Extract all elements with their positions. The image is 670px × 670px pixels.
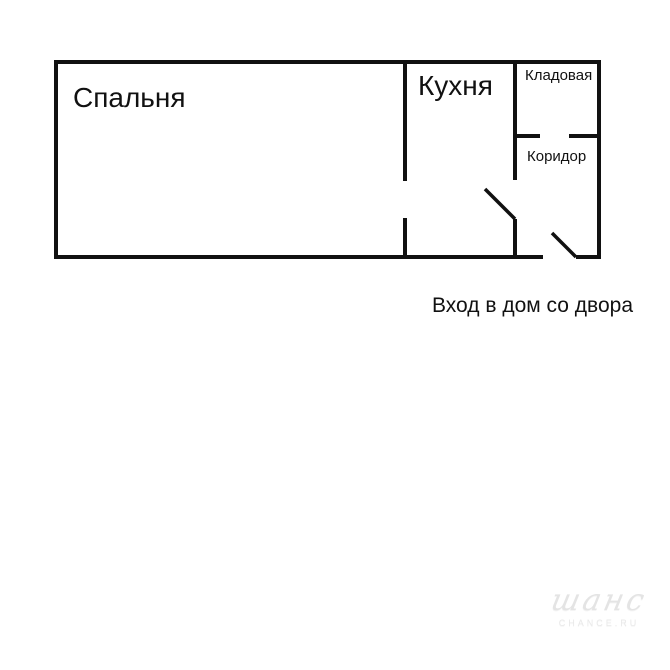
entrance-door-leaf <box>552 233 576 257</box>
floor-plan-page: Спальня Кухня Кладовая Коридор Вход в до… <box>0 0 670 670</box>
room-label-pantry: Кладовая <box>525 68 592 83</box>
watermark-logo-text: шанс <box>537 586 661 616</box>
entrance-caption: Вход в дом со двора <box>432 294 633 317</box>
kitchen-door-leaf <box>485 189 515 219</box>
watermark: шанс CHANCE.RU <box>540 586 658 628</box>
room-label-kitchen: Кухня <box>418 72 493 100</box>
room-label-corridor: Коридор <box>527 149 586 164</box>
room-label-bedroom: Спальня <box>73 84 186 112</box>
watermark-site-text: CHANCE.RU <box>540 618 658 628</box>
